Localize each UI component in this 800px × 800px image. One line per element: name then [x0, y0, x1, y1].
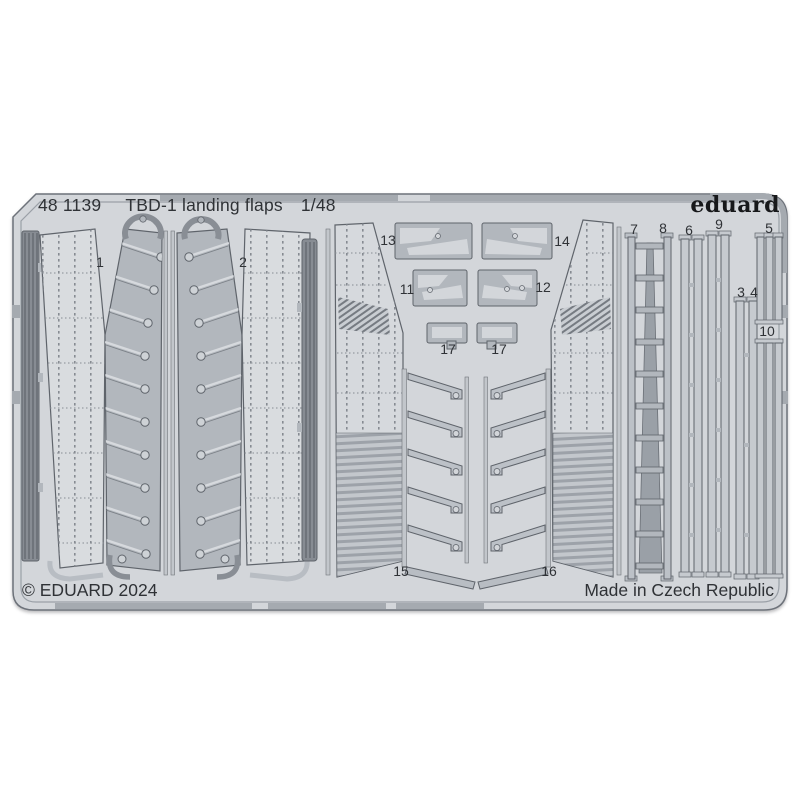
part-label-15: 15 [393, 563, 409, 579]
part-label-7: 7 [630, 221, 638, 237]
part-label-8: 8 [659, 220, 667, 236]
part-label-11: 11 [400, 281, 415, 297]
made-in-label: Made in Czech Republic [584, 580, 774, 601]
part-label-14: 14 [554, 233, 570, 249]
part-label-16: 16 [541, 563, 557, 579]
sheet-header: 48 1139TBD-1 landing flaps1/48 [38, 195, 336, 216]
photoetch-sheet-graphic [10, 193, 790, 612]
photoetch-fret-sheet: 48 1139TBD-1 landing flaps1/48 eduard © … [10, 193, 790, 612]
part-label-4: 4 [750, 284, 758, 300]
part-label-6: 6 [685, 222, 693, 238]
bracket-part-12 [478, 270, 537, 306]
product-name: TBD-1 landing flaps [125, 195, 283, 215]
part-label-17-left: 17 [440, 341, 456, 357]
part-label-3: 3 [737, 284, 745, 300]
bracket-part-14 [482, 223, 552, 259]
part-label-1: 1 [96, 254, 104, 270]
bracket-part-11 [413, 270, 467, 306]
spar-ladder-7-8 [625, 233, 673, 581]
copyright-label: © EDUARD 2024 [22, 580, 157, 601]
flap-2-upper-skin [242, 229, 317, 579]
flap-2-ribbed-skin [177, 217, 242, 577]
eduard-brand-logo: eduard [690, 192, 780, 218]
bracket-part-13 [395, 223, 472, 259]
part-label-13: 13 [380, 232, 396, 248]
part-label-12: 12 [535, 279, 551, 295]
part-label-9: 9 [715, 216, 723, 232]
strip-part-5 [755, 233, 783, 324]
scale-label: 1/48 [301, 195, 336, 215]
part-label-17-right: 17 [491, 341, 507, 357]
part-label-5: 5 [765, 220, 773, 236]
catalog-number: 48 1139 [38, 195, 101, 215]
part-label-2: 2 [239, 254, 247, 270]
strip-part-10 [755, 339, 783, 578]
part-label-10: 10 [759, 323, 775, 339]
